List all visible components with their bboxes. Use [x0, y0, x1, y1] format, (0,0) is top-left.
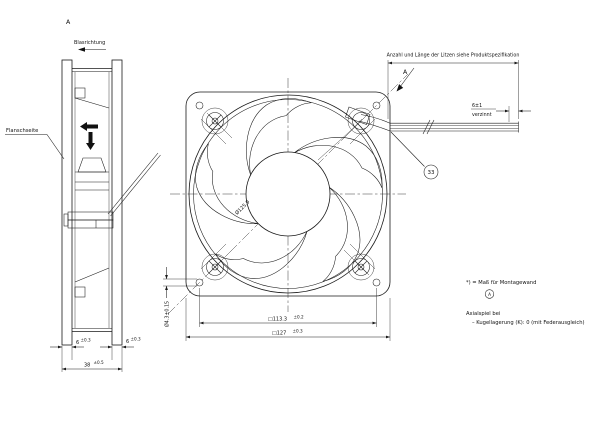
side-right-flange: [112, 60, 122, 345]
dim-tinned: 6±1: [472, 103, 482, 109]
lead-wires: Anzahl und Länge der Litzen siehe Produk…: [318, 53, 531, 180]
dim-flange-left-tol: ±0.3: [81, 338, 92, 343]
circled-a-letter: A: [488, 292, 491, 297]
side-view-label: A: [66, 19, 71, 26]
dim-outer-square-tol: ±0.3: [293, 329, 304, 334]
airflow-direction-arrow-icon: [78, 47, 106, 51]
tinned-label: verzinnt: [472, 112, 492, 118]
side-view-dimensions: 6 ±0.3 6 ±0.3 38 ±0.5: [50, 337, 141, 373]
mounting-note: *) = Maß für Montagewand: [466, 280, 536, 286]
dim-depth-tol: ±0.5: [94, 360, 105, 365]
airflow-arrows-icon: [80, 122, 98, 150]
side-left-flange: [62, 60, 72, 345]
dim-outer-square: □127: [272, 331, 286, 337]
dim-hole-spacing: □113.3: [268, 317, 287, 323]
motor-hub-outline: [78, 158, 106, 172]
dim-hole-spacing-tol: ±0.2: [294, 315, 305, 320]
dim-flange-right-tol: ±0.3: [131, 337, 142, 342]
dim-flange-right: 6: [126, 339, 129, 345]
front-view: Ø125.9 A Ø4.3±0.15 □113.3 ±0.2 □127 ±: [163, 68, 414, 341]
technical-drawing-page: A Blasrichtung: [0, 0, 600, 430]
notes-block: *) = Maß für Montagewand A Axialspiel be…: [466, 280, 585, 326]
hole-dia-dimension: Ø4.3±0.15: [163, 267, 197, 327]
airflow-direction-label: Blasrichtung: [74, 40, 105, 46]
balloon-callout: 33: [391, 132, 438, 179]
balloon-leader-line: [391, 132, 425, 167]
axial-play-note-line1: Axialspiel bei: [466, 311, 500, 317]
terminal-block: [68, 212, 113, 220]
axial-play-note-line2: – Kugellagerung (K): 0 (mit Federausglei…: [472, 320, 585, 326]
hub-circle: [246, 152, 330, 236]
wire-break-mark: [423, 120, 430, 134]
tinned-end-dimension: 6±1 verzinnt: [471, 103, 531, 122]
dim-depth: 38: [84, 363, 90, 369]
dim-hole-dia: Ø4.3±0.15: [164, 301, 171, 327]
flange-side-label: Flanschseite: [6, 128, 38, 134]
fan-drawing-svg: A Blasrichtung: [0, 0, 600, 430]
mounting-hole: [373, 279, 380, 286]
side-view: A Blasrichtung: [5, 19, 161, 372]
view-direction-arrow: A: [397, 68, 415, 92]
dim-flange-left: 6: [76, 340, 79, 346]
leads-note: Anzahl und Länge der Litzen siehe Produk…: [387, 53, 520, 59]
side-lead-wire: [108, 153, 158, 214]
flange-leader-line: [47, 135, 64, 160]
view-arrowhead-icon: [397, 84, 404, 91]
balloon-number: 33: [428, 170, 435, 176]
mounting-hole: [196, 102, 203, 109]
